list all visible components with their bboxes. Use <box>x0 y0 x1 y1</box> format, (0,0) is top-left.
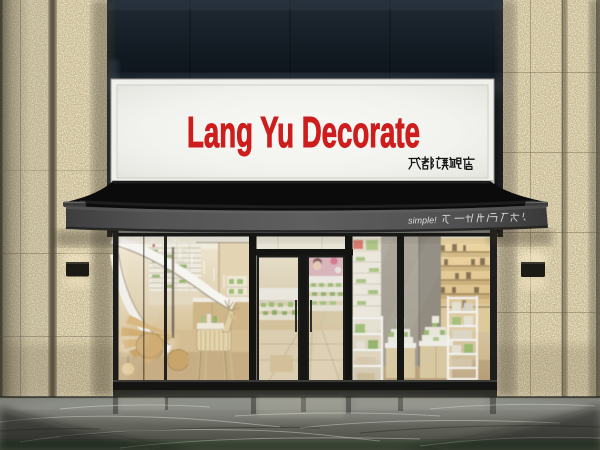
svg-text:simple!: simple! <box>408 215 437 226</box>
svg-text:Lang Yu Decorate: Lang Yu Decorate <box>187 108 420 157</box>
